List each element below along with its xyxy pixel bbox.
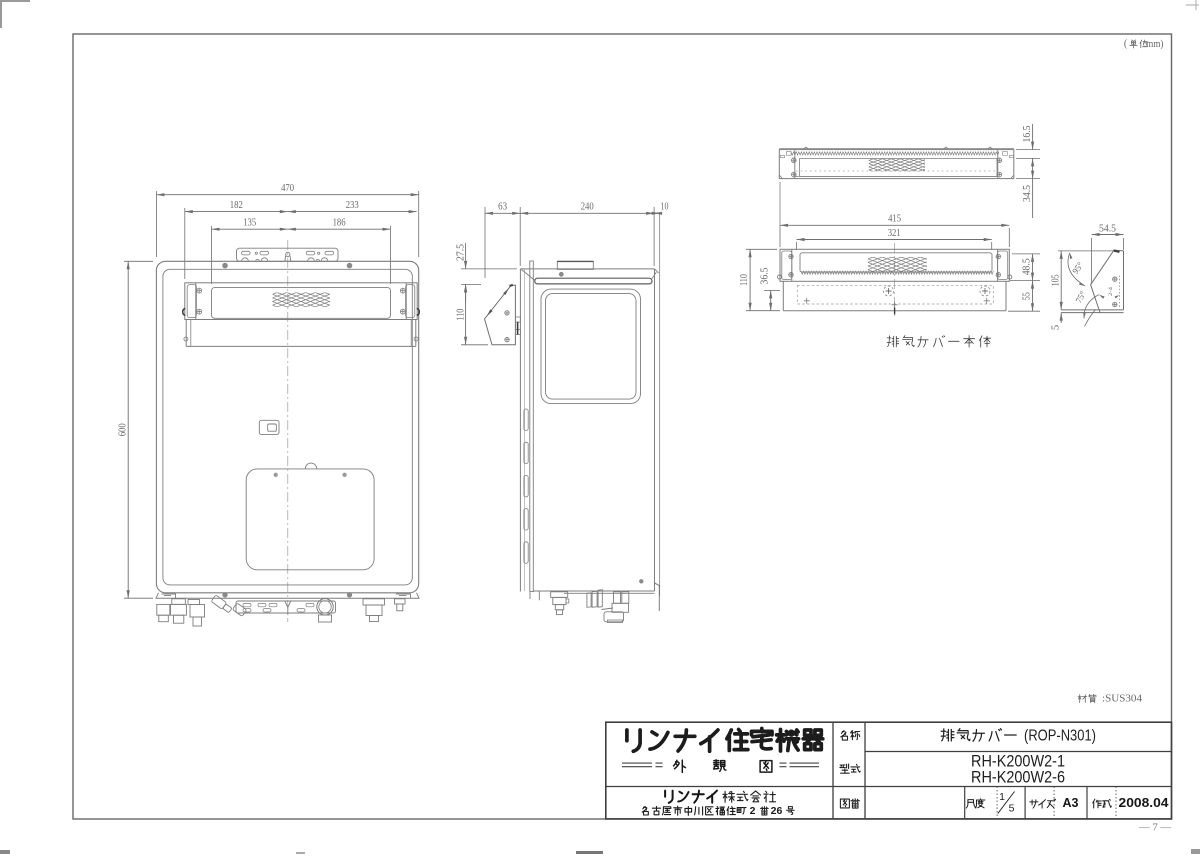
svg-text:— 7 —: — 7 — — [1138, 822, 1172, 833]
svg-text:34.5: 34.5 — [1022, 185, 1033, 202]
svg-text:470: 470 — [281, 182, 294, 194]
svg-text:105: 105 — [1049, 274, 1061, 286]
svg-text:415: 415 — [888, 213, 901, 225]
svg-text:2-4: 2-4 — [1108, 287, 1114, 296]
svg-text::SUS304: :SUS304 — [1102, 693, 1142, 704]
svg-text:2: 2 — [750, 805, 756, 817]
svg-text:600: 600 — [116, 423, 128, 436]
svg-text:(ROP-N301): (ROP-N301) — [1024, 728, 1096, 745]
svg-text:2008.04: 2008.04 — [1119, 795, 1170, 810]
svg-text:5: 5 — [1009, 802, 1015, 814]
svg-text:233: 233 — [346, 199, 359, 211]
svg-text:110: 110 — [455, 308, 467, 320]
svg-text:16.5: 16.5 — [1022, 126, 1033, 143]
svg-text:27.5: 27.5 — [455, 244, 467, 261]
svg-text:54.5: 54.5 — [1099, 222, 1116, 234]
svg-text:26: 26 — [771, 805, 783, 817]
svg-text:182: 182 — [230, 199, 243, 211]
svg-text:36.5: 36.5 — [759, 268, 770, 285]
svg-text:10: 10 — [661, 200, 669, 212]
svg-text:135: 135 — [243, 217, 256, 229]
svg-text:RH-K200W2-6: RH-K200W2-6 — [971, 768, 1065, 787]
svg-text:186: 186 — [333, 217, 346, 229]
svg-text:55: 55 — [1021, 292, 1032, 300]
svg-text:240: 240 — [581, 200, 594, 212]
svg-text:321: 321 — [888, 227, 901, 239]
svg-text::mm): :mm) — [1144, 39, 1164, 50]
svg-text:A3: A3 — [1063, 795, 1079, 810]
svg-text:110: 110 — [738, 274, 750, 286]
svg-text:63: 63 — [498, 200, 507, 212]
svg-text:48.5: 48.5 — [1021, 258, 1032, 275]
svg-text:1: 1 — [999, 791, 1005, 803]
svg-text:5: 5 — [1050, 325, 1061, 330]
